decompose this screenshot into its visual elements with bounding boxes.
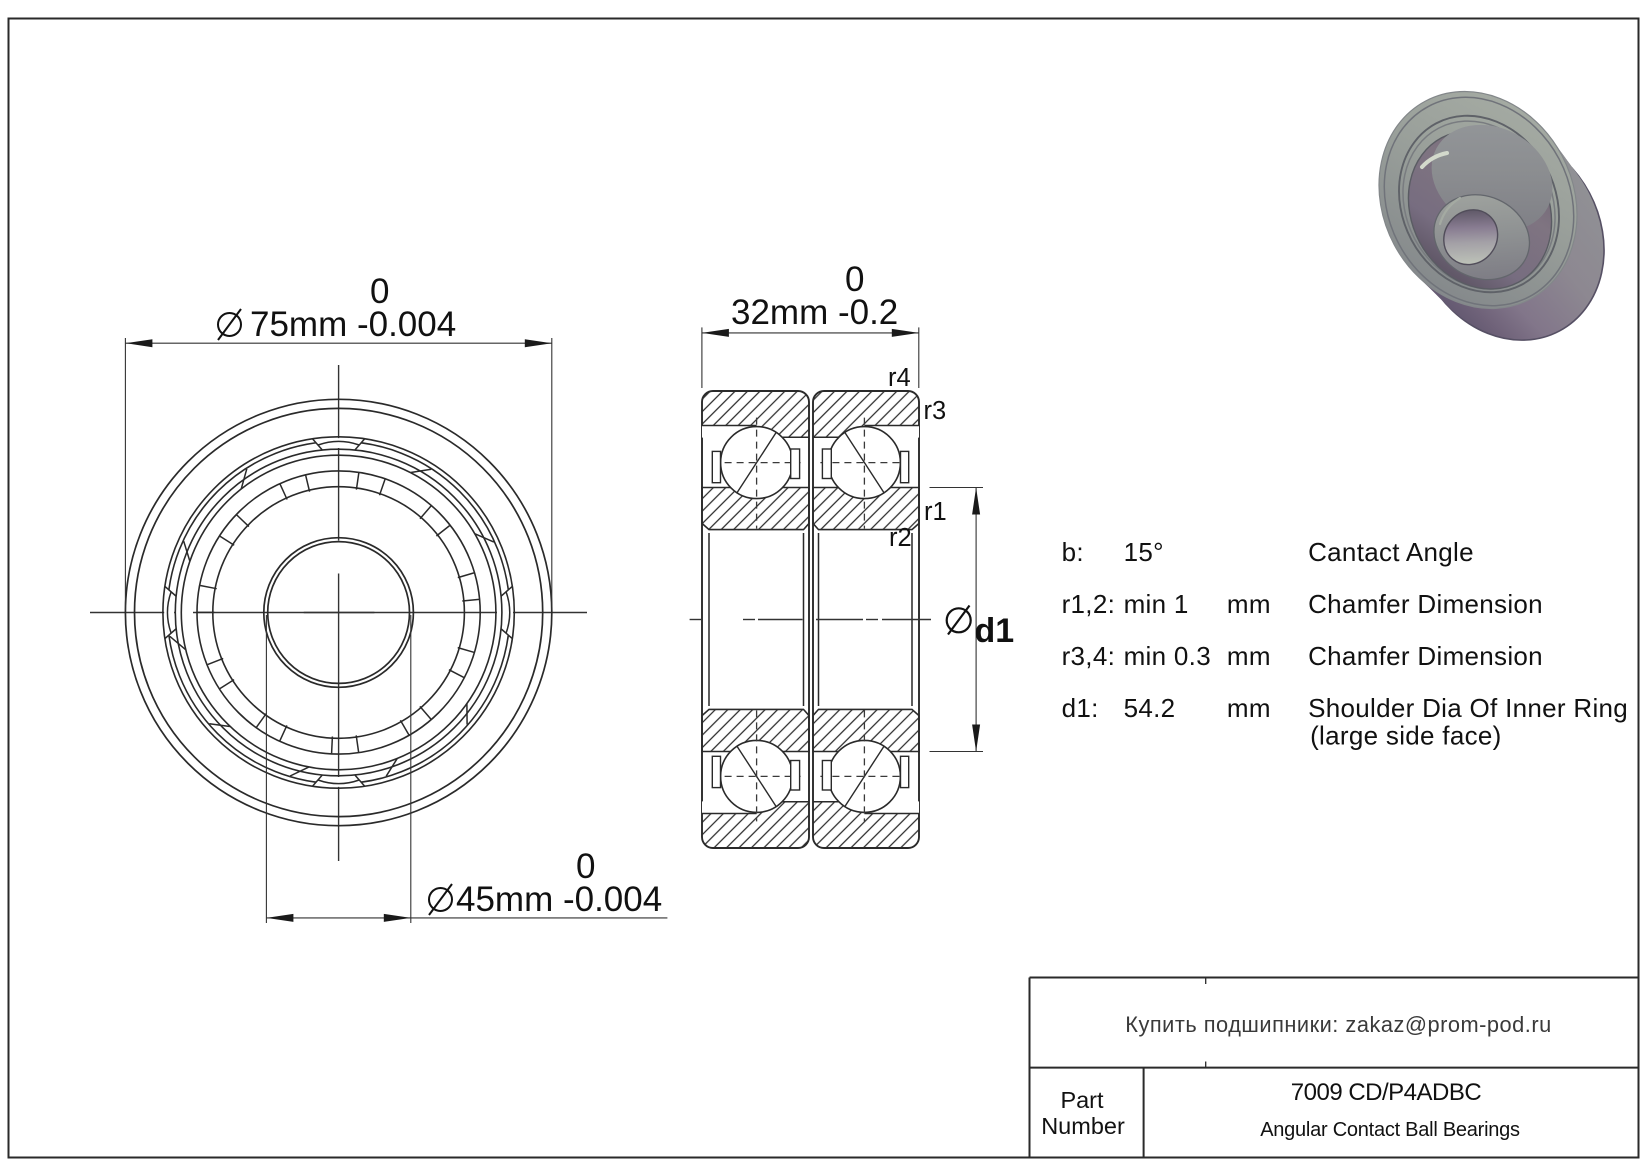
svg-text:Number: Number: [1041, 1113, 1125, 1139]
svg-text:(large side face): (large side face): [1310, 721, 1502, 751]
svg-text:d1:: d1:: [1062, 693, 1099, 723]
svg-text:mm: mm: [1227, 589, 1271, 619]
svg-text:Chamfer Dimension: Chamfer Dimension: [1308, 641, 1543, 671]
svg-text:Cantact Angle: Cantact Angle: [1308, 537, 1474, 567]
svg-text:r4: r4: [888, 364, 911, 392]
svg-text:Купить подшипники: zakaz@prom-: Купить подшипники: zakaz@prom-pod.ru: [1125, 1012, 1551, 1037]
svg-text:32mm -0.2: 32mm -0.2: [731, 293, 898, 332]
svg-text:min 1: min 1: [1124, 589, 1189, 619]
svg-text:54.2: 54.2: [1124, 693, 1176, 723]
svg-text:Chamfer Dimension: Chamfer Dimension: [1308, 589, 1543, 619]
svg-text:d1: d1: [975, 612, 1015, 650]
svg-text:min 0.3: min 0.3: [1124, 641, 1211, 671]
svg-text:Shoulder Dia Of Inner Ring: Shoulder Dia Of Inner Ring: [1308, 693, 1628, 723]
svg-text:mm: mm: [1227, 641, 1271, 671]
svg-text:15°: 15°: [1124, 537, 1164, 567]
svg-text:75mm -0.004: 75mm -0.004: [250, 305, 456, 344]
svg-text:r3,4:: r3,4:: [1062, 641, 1116, 671]
svg-text:7009 CD/P4ADBC: 7009 CD/P4ADBC: [1291, 1079, 1482, 1106]
svg-text:r1: r1: [924, 498, 947, 526]
svg-text:r1,2:: r1,2:: [1062, 589, 1116, 619]
svg-text:Angular Contact Ball Bearings: Angular Contact Ball Bearings: [1260, 1119, 1520, 1141]
svg-text:b:: b:: [1062, 537, 1084, 567]
svg-text:Part: Part: [1060, 1087, 1104, 1113]
svg-text:r3: r3: [924, 397, 947, 425]
svg-text:r2: r2: [889, 524, 912, 552]
svg-text:45mm -0.004: 45mm -0.004: [456, 880, 662, 919]
svg-text:mm: mm: [1227, 693, 1271, 723]
